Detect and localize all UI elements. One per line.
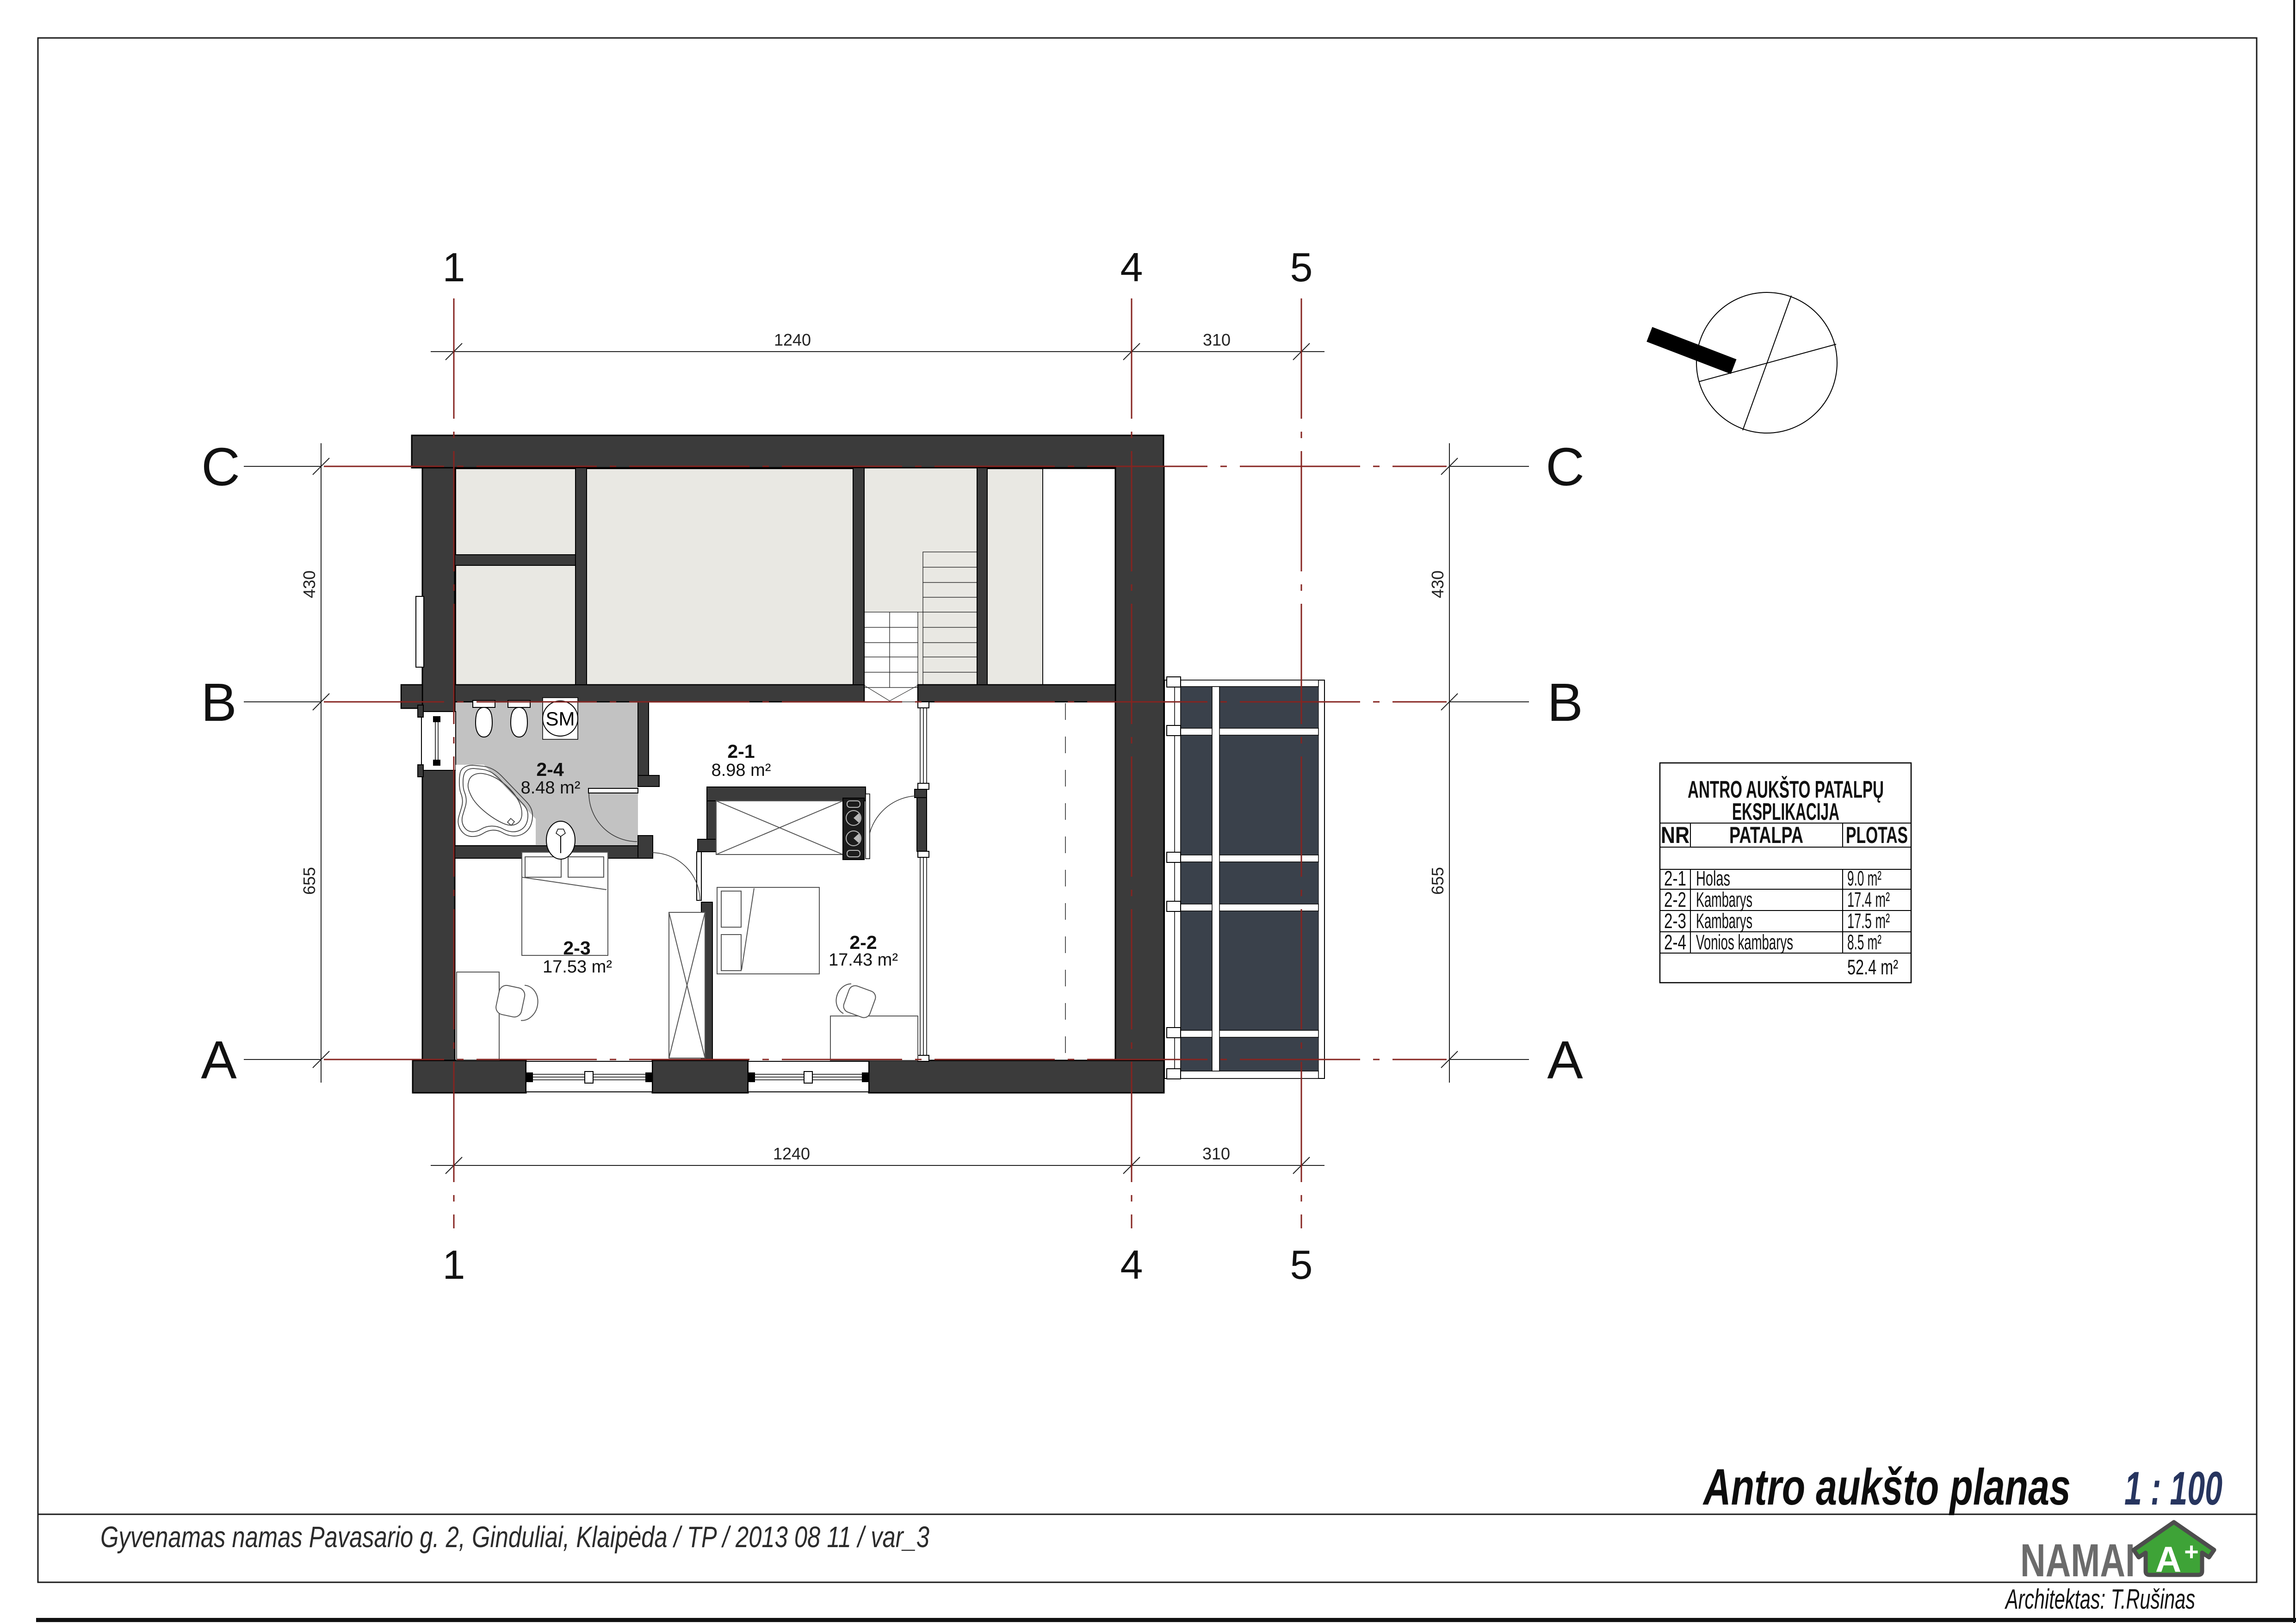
svg-text:17.53 m²: 17.53 m² [543, 957, 612, 977]
svg-text:PLOTAS: PLOTAS [1846, 822, 1908, 848]
svg-text:1: 1 [443, 1242, 465, 1288]
svg-text:NAMAI: NAMAI [2020, 1535, 2135, 1586]
svg-text:A: A [1547, 1030, 1583, 1090]
svg-text:Antro aukšto planas: Antro aukšto planas [1702, 1459, 2071, 1516]
svg-text:C: C [201, 437, 240, 497]
svg-text:655: 655 [1428, 867, 1447, 895]
svg-text:8.5 m²: 8.5 m² [1847, 930, 1881, 954]
svg-text:EKSPLIKACIJA: EKSPLIKACIJA [1732, 799, 1839, 825]
svg-text:A: A [2155, 1539, 2181, 1580]
svg-text:430: 430 [1428, 570, 1447, 598]
svg-text:430: 430 [300, 570, 319, 598]
svg-text:4: 4 [1120, 244, 1143, 290]
svg-text:B: B [1547, 672, 1583, 732]
svg-text:NR: NR [1661, 822, 1690, 848]
svg-text:Gyvenamas namas Pavasario g. 2: Gyvenamas namas Pavasario g. 2, Gindulia… [100, 1520, 929, 1554]
svg-text:2-4: 2-4 [536, 759, 563, 780]
svg-text:52.4 m²: 52.4 m² [1847, 955, 1898, 979]
svg-text:1 : 100: 1 : 100 [2124, 1462, 2222, 1515]
svg-text:C: C [1546, 437, 1584, 497]
svg-text:PATALPA: PATALPA [1729, 822, 1803, 848]
svg-text:310: 310 [1202, 1144, 1230, 1163]
svg-text:1: 1 [443, 244, 465, 290]
svg-text:9.0 m²: 9.0 m² [1847, 867, 1881, 890]
svg-text:1240: 1240 [774, 330, 811, 349]
svg-text:+: + [2184, 1538, 2199, 1566]
svg-text:2-1: 2-1 [727, 741, 755, 762]
svg-text:Vonios kambarys: Vonios kambarys [1696, 930, 1793, 954]
svg-text:Kambarys: Kambarys [1696, 888, 1752, 911]
svg-text:2-2: 2-2 [1664, 888, 1686, 911]
svg-text:4: 4 [1120, 1242, 1143, 1288]
svg-text:A: A [201, 1030, 237, 1090]
svg-text:2-1: 2-1 [1664, 867, 1686, 890]
svg-text:1240: 1240 [773, 1144, 810, 1163]
svg-text:17.43 m²: 17.43 m² [829, 950, 898, 970]
svg-text:17.5 m²: 17.5 m² [1847, 909, 1890, 933]
svg-text:655: 655 [300, 867, 319, 895]
svg-text:17.4 m²: 17.4 m² [1847, 888, 1890, 911]
svg-text:Holas: Holas [1696, 867, 1730, 890]
svg-text:8.98 m²: 8.98 m² [712, 761, 771, 780]
svg-text:SM: SM [546, 708, 575, 730]
svg-text:5: 5 [1290, 244, 1313, 290]
svg-text:8.48 m²: 8.48 m² [521, 778, 581, 798]
svg-text:2-4: 2-4 [1664, 930, 1686, 954]
svg-text:5: 5 [1290, 1242, 1313, 1288]
svg-text:2-3: 2-3 [1664, 909, 1686, 933]
svg-text:2-3: 2-3 [563, 937, 590, 959]
svg-text:Architektas: T.Rušinas: Architektas: T.Rušinas [2005, 1584, 2195, 1615]
svg-text:B: B [201, 672, 236, 732]
svg-text:Kambarys: Kambarys [1696, 909, 1752, 933]
svg-text:310: 310 [1203, 330, 1231, 349]
